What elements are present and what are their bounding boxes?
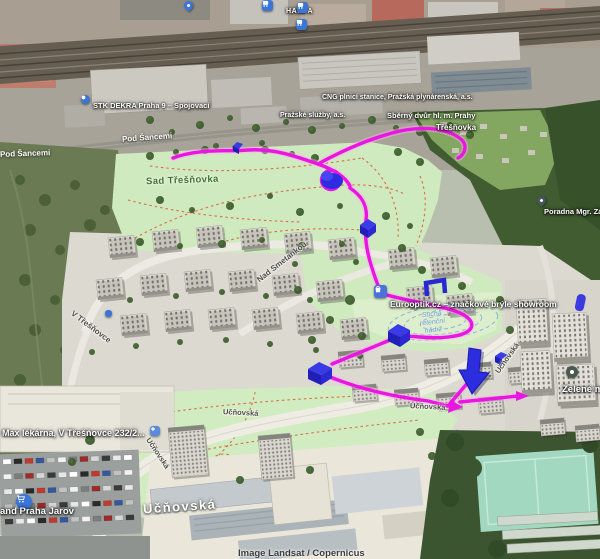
small-poi-icon[interactable]	[105, 310, 112, 317]
poi-label-zelene-mesto[interactable]: Zelené mě	[562, 384, 600, 395]
poi-label-kaufland[interactable]: and Praha Jarov	[0, 506, 74, 517]
poi-icon-stk[interactable]	[81, 95, 90, 104]
poi-label-prazske-sluzby[interactable]: Pražské služby, a.s.	[280, 112, 345, 119]
poi-label-cng[interactable]: CNG plnicí stanice, Pražská plynárenská,…	[322, 94, 473, 101]
poi-label-max-lekarna[interactable]: Max lékárna, V Třešňovce 232/2...	[2, 428, 145, 438]
map-scene	[0, 0, 600, 559]
poi-label-sberny-dvur[interactable]: Sběrný dvůr hl. m. Prahy	[387, 111, 475, 120]
bottom-right-woods	[420, 430, 600, 559]
poi-pin-zelene-mesto[interactable]	[566, 366, 578, 378]
water-label-retencni-nadrz: Suchá retenční nádrž	[419, 310, 447, 337]
transit-icon[interactable]	[262, 0, 273, 11]
street-label-ucnovska: Učňovská	[223, 407, 259, 418]
street-label-ucnovska: Učňovská	[410, 401, 446, 412]
poi-label-poradna[interactable]: Poradna Mgr. Zá	[544, 207, 600, 216]
map-attribution: Image Landsat / Copernicus	[238, 548, 365, 559]
poi-label-tresnovka[interactable]: Třešňovka	[436, 123, 476, 132]
pharmacy-icon[interactable]	[150, 426, 160, 436]
poi-label-eurooptik[interactable]: Eurooptik.cz – značkové brýle showroom	[390, 299, 557, 309]
shop-bag-icon[interactable]	[374, 285, 387, 298]
transit-icon[interactable]	[296, 19, 307, 30]
street-label-pod-sancemi: Pod Šancemi	[0, 148, 50, 159]
poi-label-stk-dekra[interactable]: STK DEKRA Praha 9 – Spojovací	[93, 101, 209, 110]
transit-icon[interactable]	[297, 2, 308, 13]
map-canvas[interactable]: HARFA STK DEKRA Praha 9 – Spojovací CNG …	[0, 0, 600, 559]
